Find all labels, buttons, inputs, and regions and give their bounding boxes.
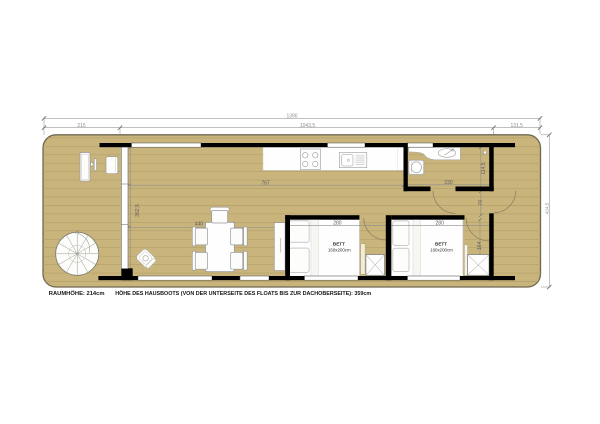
svg-text:70: 70 (478, 200, 484, 206)
svg-text:215: 215 (77, 123, 86, 129)
svg-text:767: 767 (261, 180, 270, 186)
svg-text:BETT: BETT (333, 241, 345, 246)
svg-text:114,5: 114,5 (481, 162, 487, 174)
svg-text:HÖHE DES HAUSBOOTS (VON DER UN: HÖHE DES HAUSBOOTS (VON DER UNTERSEITE D… (115, 290, 371, 297)
svg-text:160x200cm: 160x200cm (328, 247, 351, 252)
svg-text:440: 440 (195, 222, 204, 228)
svg-text:280: 280 (333, 221, 342, 227)
svg-text:1390: 1390 (286, 114, 297, 120)
svg-text:424,5: 424,5 (545, 202, 550, 214)
svg-text:131,5: 131,5 (510, 123, 523, 129)
svg-text:280: 280 (436, 221, 445, 227)
svg-text:160x200cm: 160x200cm (430, 247, 453, 252)
svg-text:1043,5: 1043,5 (300, 123, 316, 129)
svg-text:230: 230 (444, 180, 453, 186)
svg-text:164: 164 (477, 241, 483, 250)
svg-text:RAUMHÖHE: 214cm: RAUMHÖHE: 214cm (49, 290, 105, 297)
svg-text:BETT: BETT (435, 241, 447, 246)
svg-text:362,5: 362,5 (135, 204, 141, 217)
